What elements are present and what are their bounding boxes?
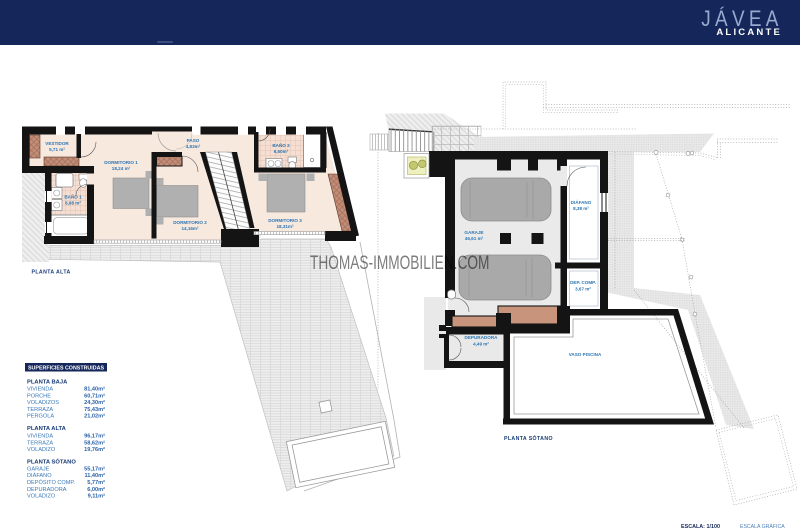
svg-text:PLANTA SÓTANO: PLANTA SÓTANO bbox=[27, 458, 76, 466]
svg-text:24,30m²: 24,30m² bbox=[84, 399, 105, 406]
svg-text:PERGOLA: PERGOLA bbox=[27, 414, 54, 420]
svg-text:ESCALA: 1/100: ESCALA: 1/100 bbox=[681, 524, 720, 530]
svg-text:DEP. COMP.: DEP. COMP. bbox=[570, 280, 596, 285]
svg-text:DORMITORIO 1: DORMITORIO 1 bbox=[104, 160, 138, 165]
svg-text:PLANTA BAJA: PLANTA BAJA bbox=[27, 380, 68, 386]
svg-text:55,17m²: 55,17m² bbox=[84, 465, 105, 472]
svg-text:4,83m²: 4,83m² bbox=[186, 144, 201, 149]
svg-text:18,31m²: 18,31m² bbox=[276, 224, 294, 229]
svg-text:6,98 m²: 6,98 m² bbox=[65, 201, 81, 206]
svg-text:3,67 m²: 3,67 m² bbox=[575, 287, 591, 292]
svg-text:6,00m²: 6,00m² bbox=[87, 486, 105, 493]
svg-text:19,76m²: 19,76m² bbox=[84, 446, 105, 453]
svg-text:GARAJE: GARAJE bbox=[27, 466, 50, 472]
svg-text:11,40m²: 11,40m² bbox=[84, 472, 105, 479]
svg-text:BAÑO 1: BAÑO 1 bbox=[64, 194, 82, 200]
svg-text:60,71m²: 60,71m² bbox=[84, 392, 105, 399]
svg-text:DORMITORIO 3: DORMITORIO 3 bbox=[268, 218, 302, 223]
svg-text:BAÑO 2: BAÑO 2 bbox=[272, 142, 290, 148]
svg-text:DIÁFANO: DIÁFANO bbox=[571, 199, 592, 205]
svg-text:DEPURADORA: DEPURADORA bbox=[27, 487, 67, 493]
svg-text:18,24 m²: 18,24 m² bbox=[112, 166, 131, 171]
svg-text:VESTIDOR: VESTIDOR bbox=[45, 141, 69, 146]
svg-text:PORCHE: PORCHE bbox=[27, 393, 51, 399]
svg-text:GARAJE: GARAJE bbox=[464, 230, 483, 235]
svg-text:VOLADIZOS: VOLADIZOS bbox=[27, 400, 59, 406]
svg-text:9,11m²: 9,11m² bbox=[88, 493, 106, 500]
svg-text:6,50m²: 6,50m² bbox=[274, 149, 289, 154]
svg-text:8,38 m²: 8,38 m² bbox=[573, 206, 589, 211]
svg-text:DEPÓSITO COMP.: DEPÓSITO COMP. bbox=[27, 479, 75, 486]
svg-text:PASO: PASO bbox=[187, 138, 200, 143]
svg-text:VOLADIZO: VOLADIZO bbox=[27, 494, 56, 500]
svg-text:5,71 m²: 5,71 m² bbox=[49, 147, 65, 152]
svg-text:4,49 m²: 4,49 m² bbox=[473, 342, 489, 347]
svg-text:46,61 m²: 46,61 m² bbox=[465, 236, 484, 241]
svg-text:TERRAZA: TERRAZA bbox=[27, 440, 53, 446]
svg-text:DIÁFANO: DIÁFANO bbox=[27, 472, 52, 479]
svg-text:VIVIENDA: VIVIENDA bbox=[27, 434, 53, 440]
svg-text:VOLADIZO: VOLADIZO bbox=[27, 447, 56, 453]
svg-text:VIVIENDA: VIVIENDA bbox=[27, 387, 53, 393]
svg-text:96,17m²: 96,17m² bbox=[84, 433, 105, 440]
svg-text:SUPERFICIES CONSTRUIDAS: SUPERFICIES CONSTRUIDAS bbox=[28, 365, 105, 371]
svg-text:PLANTA SÓTANO: PLANTA SÓTANO bbox=[504, 434, 553, 442]
svg-text:DORMITORIO 2: DORMITORIO 2 bbox=[173, 220, 207, 225]
svg-text:PLANTA ALTA: PLANTA ALTA bbox=[32, 270, 71, 276]
svg-text:DEPURADORA: DEPURADORA bbox=[465, 335, 499, 340]
svg-text:75,43m²: 75,43m² bbox=[84, 406, 105, 413]
svg-text:TERRAZA: TERRAZA bbox=[27, 407, 53, 413]
svg-text:14,16m²: 14,16m² bbox=[181, 226, 199, 231]
svg-text:81,40m²: 81,40m² bbox=[84, 386, 105, 393]
svg-text:5,77m²: 5,77m² bbox=[87, 479, 105, 486]
svg-text:PLANTA ALTA: PLANTA ALTA bbox=[27, 426, 67, 432]
svg-text:21,02m²: 21,02m² bbox=[84, 413, 105, 420]
svg-text:58,62m²: 58,62m² bbox=[84, 439, 105, 446]
svg-text:VASO PISCINA: VASO PISCINA bbox=[569, 352, 602, 357]
svg-text:ESCALA GRÁFICA: ESCALA GRÁFICA bbox=[740, 523, 785, 530]
